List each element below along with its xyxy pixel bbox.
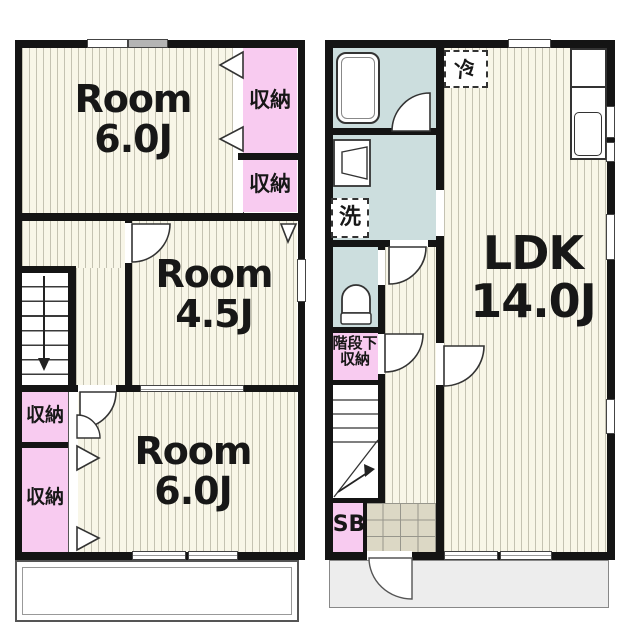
closet-door-strip-left bbox=[68, 392, 78, 552]
toilet-area bbox=[333, 247, 378, 327]
wall-2f-mid1 bbox=[15, 213, 305, 221]
porch bbox=[329, 560, 609, 608]
entrance-tile bbox=[365, 503, 436, 552]
ldk-size: 14.0J bbox=[443, 278, 623, 326]
closet-bottom-lower-label: 収納 bbox=[22, 488, 68, 508]
wall-2f-left bbox=[15, 40, 22, 560]
room-45j-label: Room 4.5J bbox=[124, 255, 304, 334]
laundry-label: 洗 bbox=[339, 207, 361, 230]
kitchen-counter-upper bbox=[570, 48, 607, 88]
window-ldk-right-1 bbox=[606, 106, 615, 138]
wall-stairs1f-bottom bbox=[325, 498, 385, 503]
wall-1f-left bbox=[325, 40, 333, 560]
window-ldk-bottom-1 bbox=[444, 551, 498, 560]
floor-plan-canvas: 洗 冷 Room 6.0J Room 4.5J Room 6.0J LDK 14… bbox=[0, 0, 640, 633]
room-45j-size: 4.5J bbox=[124, 295, 304, 335]
window-ldk-bottom-2 bbox=[500, 551, 552, 560]
ldk-name: LDK bbox=[443, 230, 623, 278]
door-gap-washroom bbox=[390, 240, 428, 247]
closet-bottom-upper-label: 収納 bbox=[22, 406, 68, 426]
bathtub-inner-line bbox=[341, 57, 375, 119]
wall-understairs-top bbox=[325, 327, 385, 333]
shoebox-label: SB bbox=[330, 514, 368, 537]
stairs-1f bbox=[333, 385, 378, 498]
room-6j-lower-name: Room bbox=[103, 432, 283, 472]
window-ldk-right-2 bbox=[606, 142, 615, 162]
closet-top-lower-label: 収納 bbox=[243, 174, 297, 196]
balcony-inner-line bbox=[22, 567, 292, 615]
closet-divider-wall-top bbox=[238, 153, 305, 160]
wall-understairs-bottom bbox=[325, 380, 385, 385]
stairs-top-wall bbox=[15, 266, 76, 273]
window-ldk-right-4 bbox=[606, 399, 615, 434]
room-6j-lower-label: Room 6.0J bbox=[103, 432, 283, 511]
front-door-gap bbox=[367, 551, 412, 560]
wall-bath-bottom bbox=[325, 128, 440, 135]
closet-divider-wall-bottom bbox=[15, 442, 68, 448]
window-2f-top-left bbox=[87, 39, 128, 48]
closet-top-upper-label: 収納 bbox=[243, 90, 297, 112]
door-gap-room6-lower bbox=[78, 385, 116, 392]
room-6j-lower-size: 6.0J bbox=[103, 472, 283, 512]
door-gap-ldk bbox=[436, 343, 444, 385]
ldk-label: LDK 14.0J bbox=[443, 230, 623, 326]
hallway-1f bbox=[385, 247, 436, 503]
bathtub bbox=[336, 52, 380, 124]
window-2f-top-right bbox=[128, 39, 168, 48]
kitchen-sink bbox=[574, 112, 602, 156]
stairs-2f bbox=[22, 273, 68, 385]
room-6j-upper-label: Room 6.0J bbox=[43, 80, 223, 159]
window-ldk-top bbox=[508, 39, 551, 48]
hall-upper bbox=[22, 221, 125, 268]
door-gap-toilet bbox=[378, 250, 385, 285]
fridge-label: 冷 bbox=[453, 56, 478, 82]
understairs-storage-label: 階段下 収納 bbox=[329, 336, 381, 367]
room-6j-upper-size: 6.0J bbox=[43, 120, 223, 160]
hall-beside-stairs bbox=[76, 268, 125, 385]
sliding-partition-45-6 bbox=[140, 385, 244, 392]
window-2f-bottom-2 bbox=[188, 551, 238, 560]
understairs-line2: 収納 bbox=[329, 352, 381, 368]
refrigerator-space: 冷 bbox=[444, 50, 488, 88]
stairs-right-wall bbox=[68, 266, 76, 392]
room-45j-name: Room bbox=[124, 255, 304, 295]
wall-1f-top bbox=[325, 40, 615, 48]
laundry-machine-space: 洗 bbox=[331, 198, 369, 238]
balcony bbox=[15, 560, 299, 622]
window-2f-bottom-1 bbox=[132, 551, 186, 560]
room-6j-upper-name: Room bbox=[43, 80, 223, 120]
